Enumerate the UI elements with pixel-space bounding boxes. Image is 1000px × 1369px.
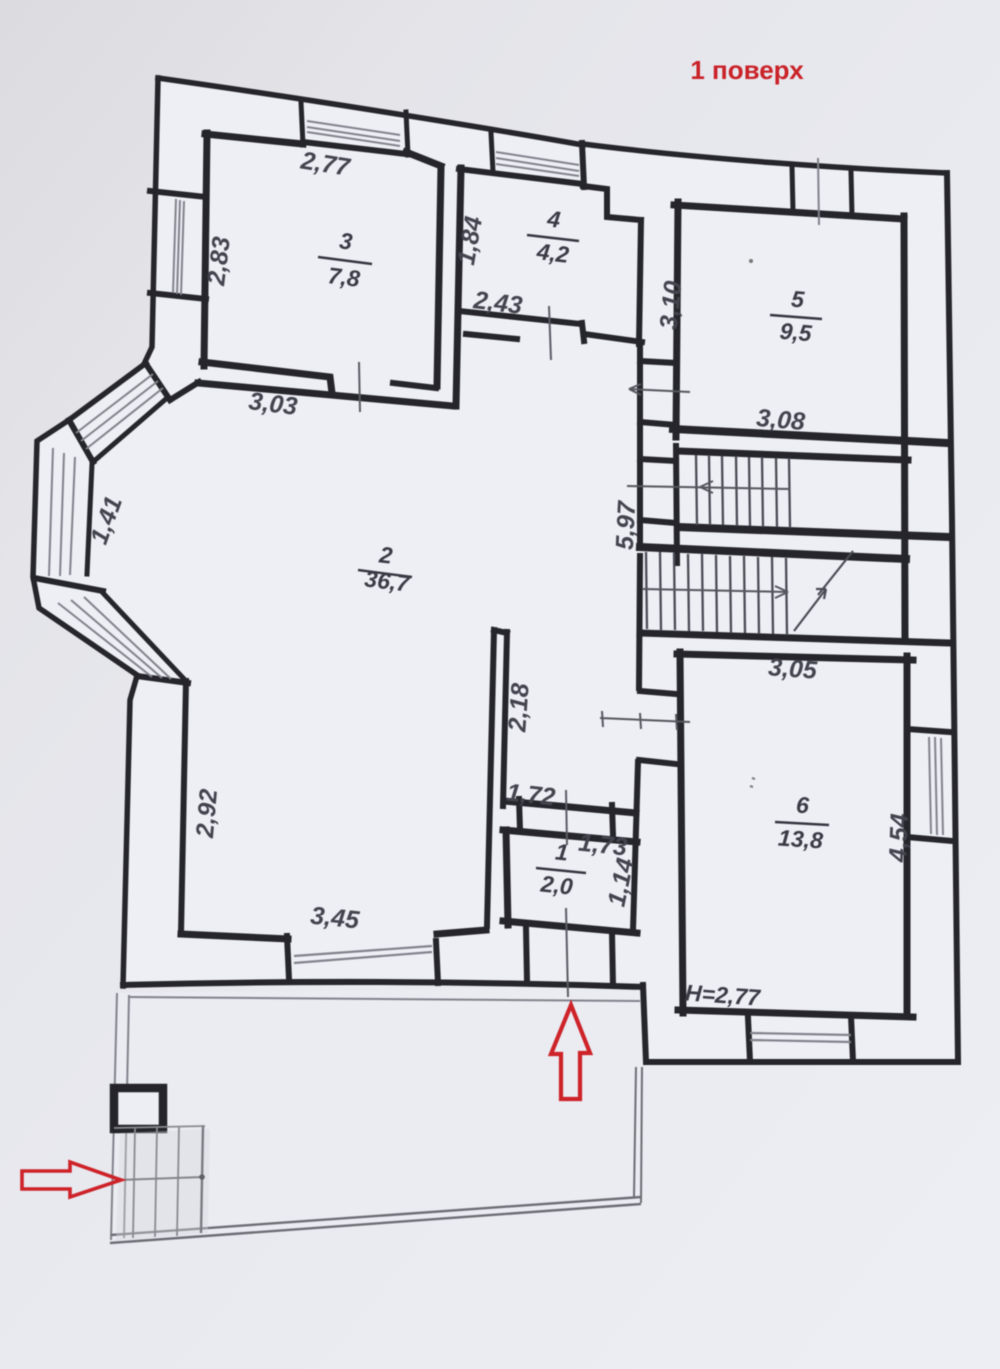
svg-text:4,54: 4,54 (884, 813, 914, 864)
svg-text:36,7: 36,7 (363, 565, 412, 596)
svg-text:2,92: 2,92 (191, 788, 223, 840)
svg-text:3,08: 3,08 (755, 404, 806, 436)
svg-text:6: 6 (795, 792, 810, 819)
svg-text:2,18: 2,18 (503, 682, 534, 734)
svg-text:1: 1 (554, 838, 569, 865)
svg-text:3,10: 3,10 (655, 279, 688, 330)
svg-text:H=2,77: H=2,77 (684, 979, 762, 1010)
svg-text:5,97: 5,97 (611, 499, 642, 550)
svg-text:3,03: 3,03 (247, 387, 299, 421)
svg-text:3,05: 3,05 (767, 653, 819, 684)
svg-text:9,5: 9,5 (779, 318, 814, 347)
svg-text:4,2: 4,2 (535, 238, 571, 268)
svg-text:1,72: 1,72 (505, 779, 556, 812)
svg-text:3,45: 3,45 (309, 902, 361, 935)
svg-text:7,8: 7,8 (327, 262, 362, 292)
svg-text:2,0: 2,0 (539, 870, 575, 899)
svg-text:13,8: 13,8 (777, 824, 824, 853)
svg-text:1 поверх: 1 поверх (690, 55, 804, 85)
svg-text:1,73: 1,73 (577, 829, 628, 862)
